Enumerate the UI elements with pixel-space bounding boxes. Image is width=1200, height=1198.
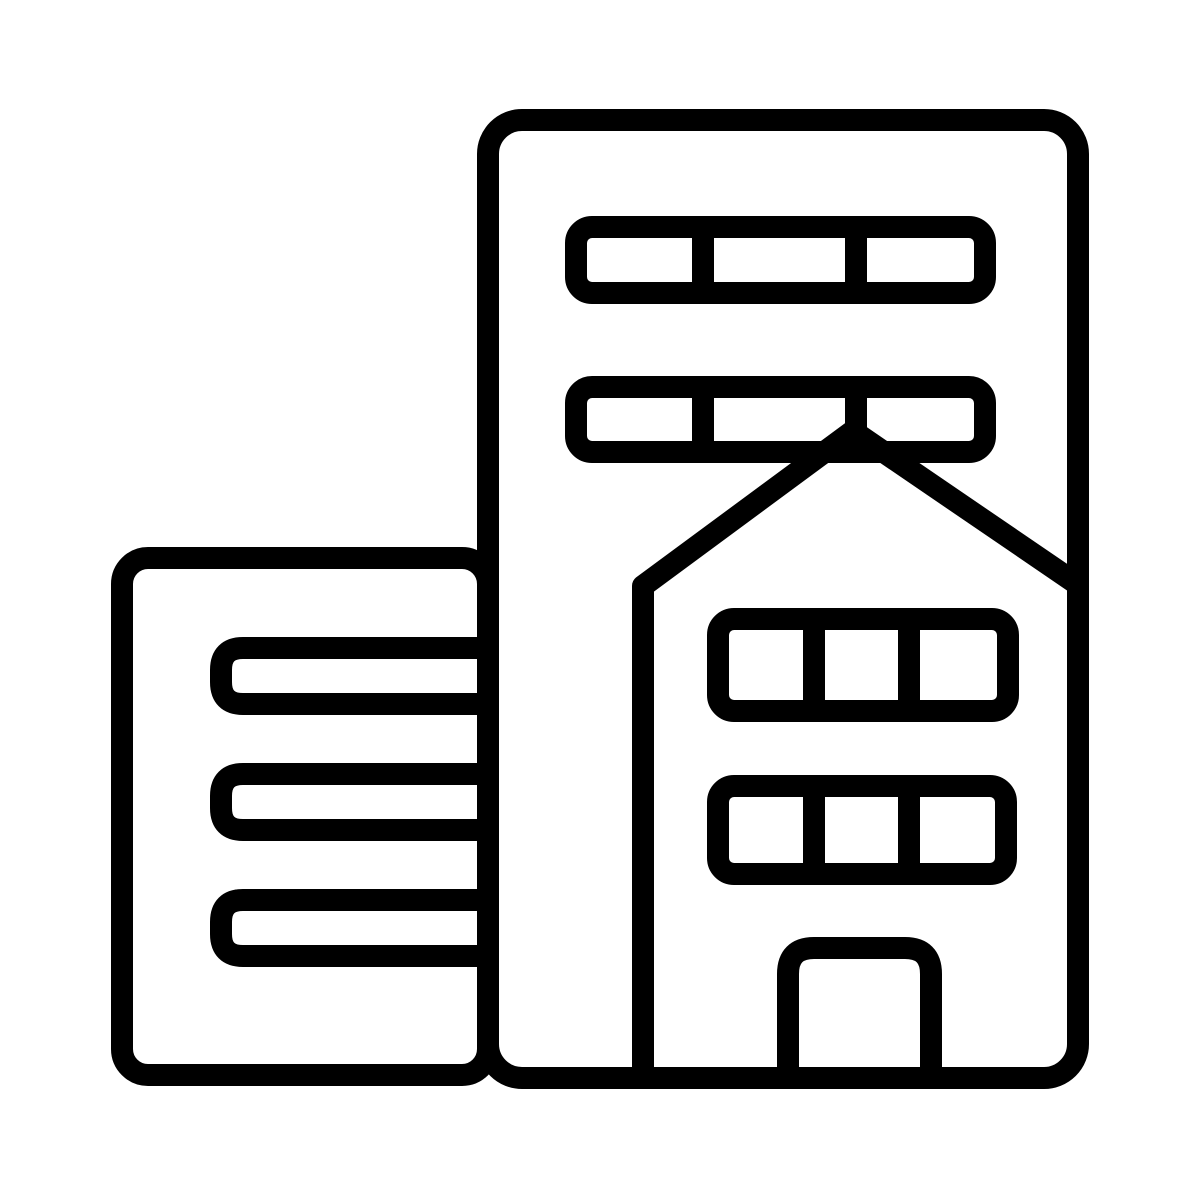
icon-canvas: Black outline icon of city buildings: a … [0, 0, 1200, 1198]
buildings-icon: Black outline icon of city buildings: a … [0, 0, 1200, 1198]
icon-background [0, 0, 1200, 1198]
